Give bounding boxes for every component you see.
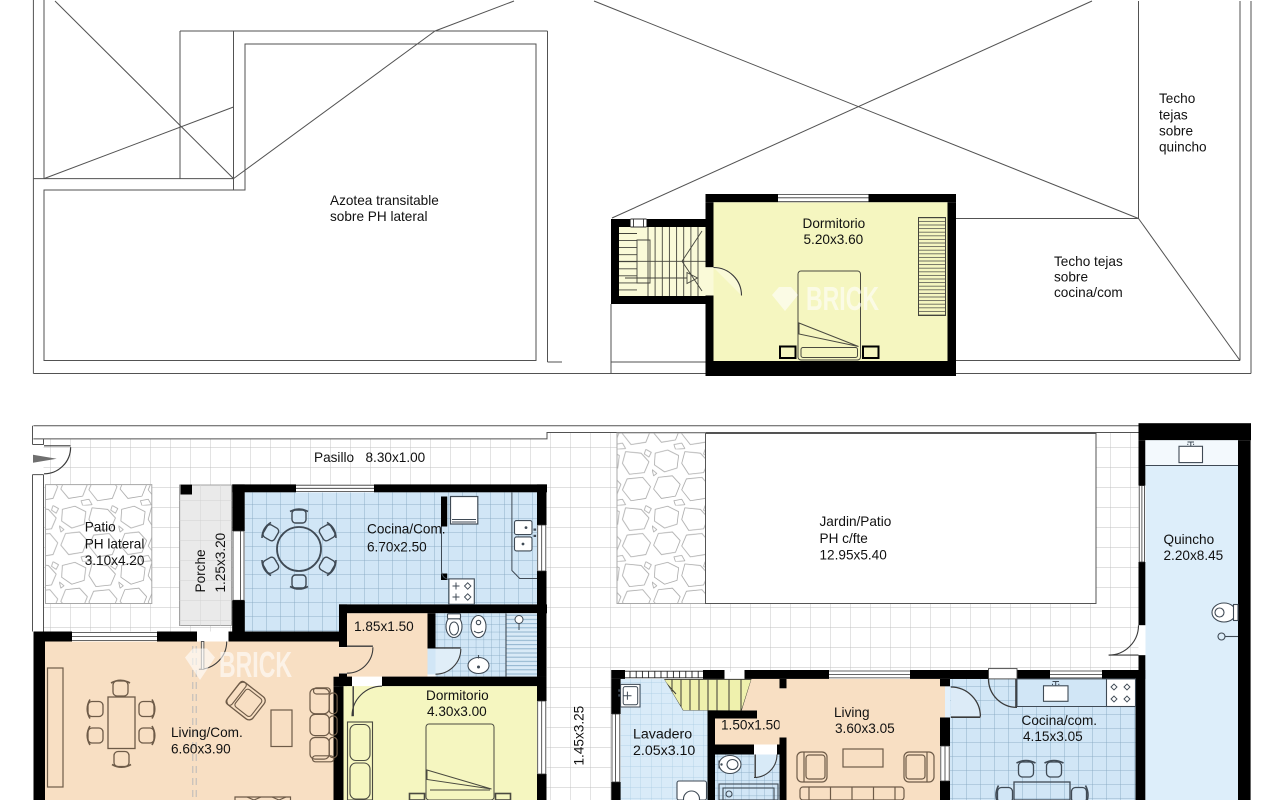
- svg-text:Techo tejas: Techo tejas: [1054, 254, 1123, 269]
- svg-text:Dormitorio: Dormitorio: [426, 688, 489, 703]
- svg-text:4.30x3.00: 4.30x3.00: [427, 704, 487, 719]
- svg-text:Patio: Patio: [85, 520, 116, 535]
- svg-text:BRICK: BRICK: [219, 644, 292, 685]
- svg-text:cocina/com: cocina/com: [1054, 285, 1123, 300]
- svg-text:6.60x3.90: 6.60x3.90: [171, 741, 231, 756]
- svg-text:1.50x1.50: 1.50x1.50: [721, 718, 781, 733]
- svg-text:3.10x4.20: 3.10x4.20: [85, 553, 145, 568]
- svg-text:quincho: quincho: [1159, 140, 1207, 155]
- svg-text:2.20x8.45: 2.20x8.45: [1164, 548, 1224, 563]
- svg-text:8.30x1.00: 8.30x1.00: [366, 450, 426, 465]
- svg-text:Lavadero: Lavadero: [633, 727, 692, 743]
- svg-text:Dormitorio: Dormitorio: [803, 216, 866, 231]
- svg-text:sobre: sobre: [1054, 270, 1088, 285]
- svg-text:6.70x2.50: 6.70x2.50: [367, 539, 427, 554]
- svg-text:Cocina/com.: Cocina/com.: [1022, 713, 1098, 728]
- svg-text:sobre PH lateral: sobre PH lateral: [330, 209, 427, 224]
- svg-text:1.25x3.20: 1.25x3.20: [213, 532, 228, 592]
- svg-text:3.60x3.05: 3.60x3.05: [835, 721, 895, 736]
- svg-text:Cocina/Com.: Cocina/Com.: [367, 522, 446, 537]
- svg-text:Living: Living: [834, 705, 870, 720]
- svg-text:2.05x3.10: 2.05x3.10: [633, 743, 695, 759]
- svg-text:sobre: sobre: [1159, 124, 1193, 139]
- svg-text:1.45x3.25: 1.45x3.25: [572, 706, 587, 766]
- svg-text:5.20x3.60: 5.20x3.60: [804, 232, 864, 247]
- svg-text:4.15x3.05: 4.15x3.05: [1023, 729, 1083, 744]
- svg-text:Pasillo: Pasillo: [314, 450, 354, 465]
- svg-text:12.95x5.40: 12.95x5.40: [820, 548, 888, 563]
- svg-text:1.85x1.50: 1.85x1.50: [354, 619, 414, 634]
- svg-text:Azotea transitable: Azotea transitable: [330, 193, 439, 208]
- svg-text:tejas: tejas: [1159, 107, 1188, 122]
- svg-text:BRICK: BRICK: [806, 280, 879, 317]
- svg-text:Jardin/Patio: Jardin/Patio: [820, 514, 892, 529]
- svg-text:PH c/fte: PH c/fte: [820, 531, 868, 546]
- svg-text:Quincho: Quincho: [1164, 532, 1215, 547]
- svg-text:PH lateral: PH lateral: [85, 536, 145, 551]
- svg-text:Living/Com.: Living/Com.: [171, 725, 243, 740]
- svg-text:Porche: Porche: [193, 549, 208, 592]
- svg-text:Techo: Techo: [1159, 91, 1195, 106]
